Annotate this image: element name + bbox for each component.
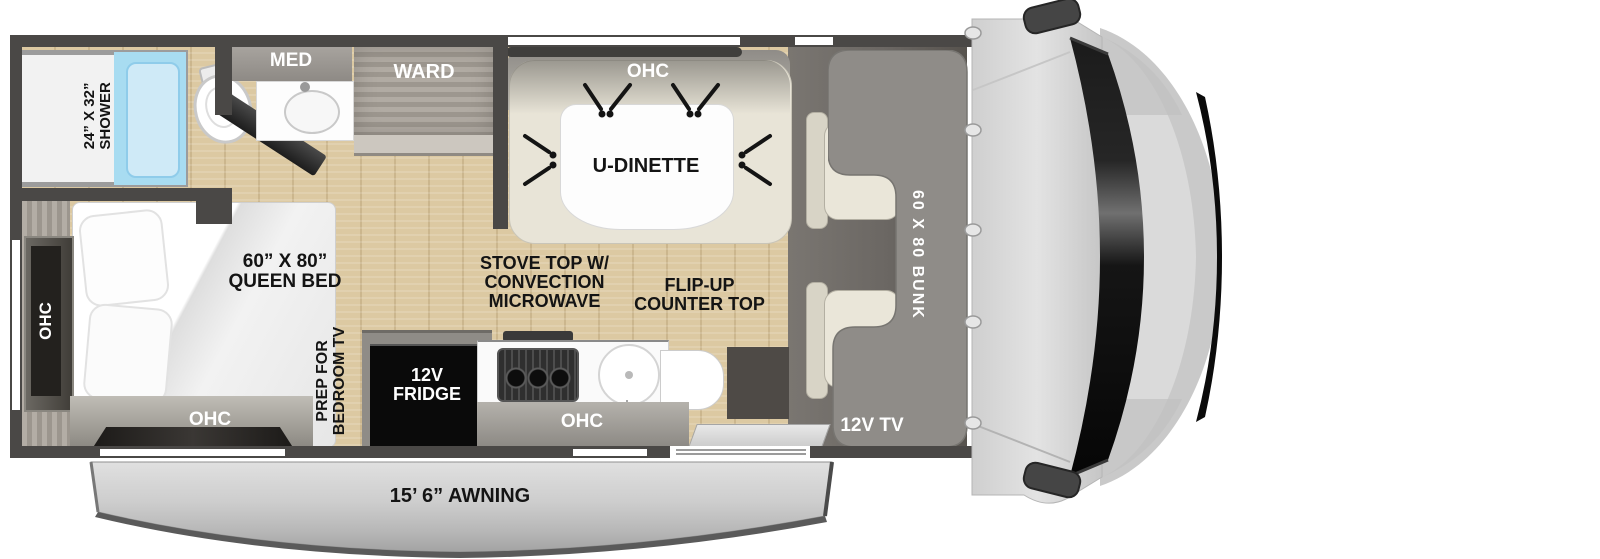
cab-side-window (795, 37, 833, 45)
entry-threshold (676, 449, 806, 451)
bedroom-side-ohc-label: OHC (37, 281, 55, 361)
bedroom-window (100, 449, 285, 456)
cab-front (960, 0, 1230, 559)
pillow (77, 208, 170, 308)
bathroom-sink-bowl (284, 90, 340, 134)
wardrobe-wall-stub (493, 47, 508, 229)
bedroom-side-window (12, 240, 20, 410)
cab-tv-label: 12V TV (826, 416, 918, 436)
flip-up-counter (660, 350, 724, 410)
entry-step-well (727, 347, 789, 419)
rv-floorplan-diagram: 60” X 80” QUEEN BED PREP FOR BEDROOM TV … (0, 0, 1600, 559)
shower-label: 24” X 32” SHOWER (82, 41, 114, 191)
bathroom-wall-corner (196, 188, 232, 224)
awning-label: 15’ 6” AWNING (382, 486, 538, 507)
entry-threshold (676, 453, 806, 455)
wardrobe-shelf (354, 135, 494, 156)
awning (85, 460, 840, 559)
seat-belts-icon (505, 58, 790, 243)
kitchen-sink (598, 344, 660, 406)
shower-pan (126, 62, 180, 178)
ward-label: WARD (372, 62, 476, 83)
stove-top (497, 348, 579, 402)
kitchen-ohc-label: OHC (552, 412, 612, 432)
overcab-bunk (828, 50, 970, 450)
dinette-window (508, 37, 740, 45)
slide-topper (506, 47, 742, 57)
pillow (82, 303, 174, 406)
bunk-label: 60 X 80 BUNK (908, 150, 925, 360)
fridge-label: 12V FRIDGE (370, 366, 484, 404)
med-label: MED (248, 51, 334, 71)
stove-label: STOVE TOP W/ CONVECTION MICROWAVE (462, 254, 627, 311)
bathroom-wall-stub (215, 35, 232, 115)
flip-up-counter-label: FLIP-UP COUNTER TOP (622, 276, 777, 314)
entry-door-opening (670, 446, 810, 458)
queen-bed-label: 60” X 80” QUEEN BED (205, 252, 365, 292)
faucet-icon (300, 82, 310, 92)
sink-drain-icon (625, 371, 633, 379)
tv-prep-label: PREP FOR BEDROOM TV (315, 306, 349, 456)
kitchen-window (573, 449, 647, 456)
